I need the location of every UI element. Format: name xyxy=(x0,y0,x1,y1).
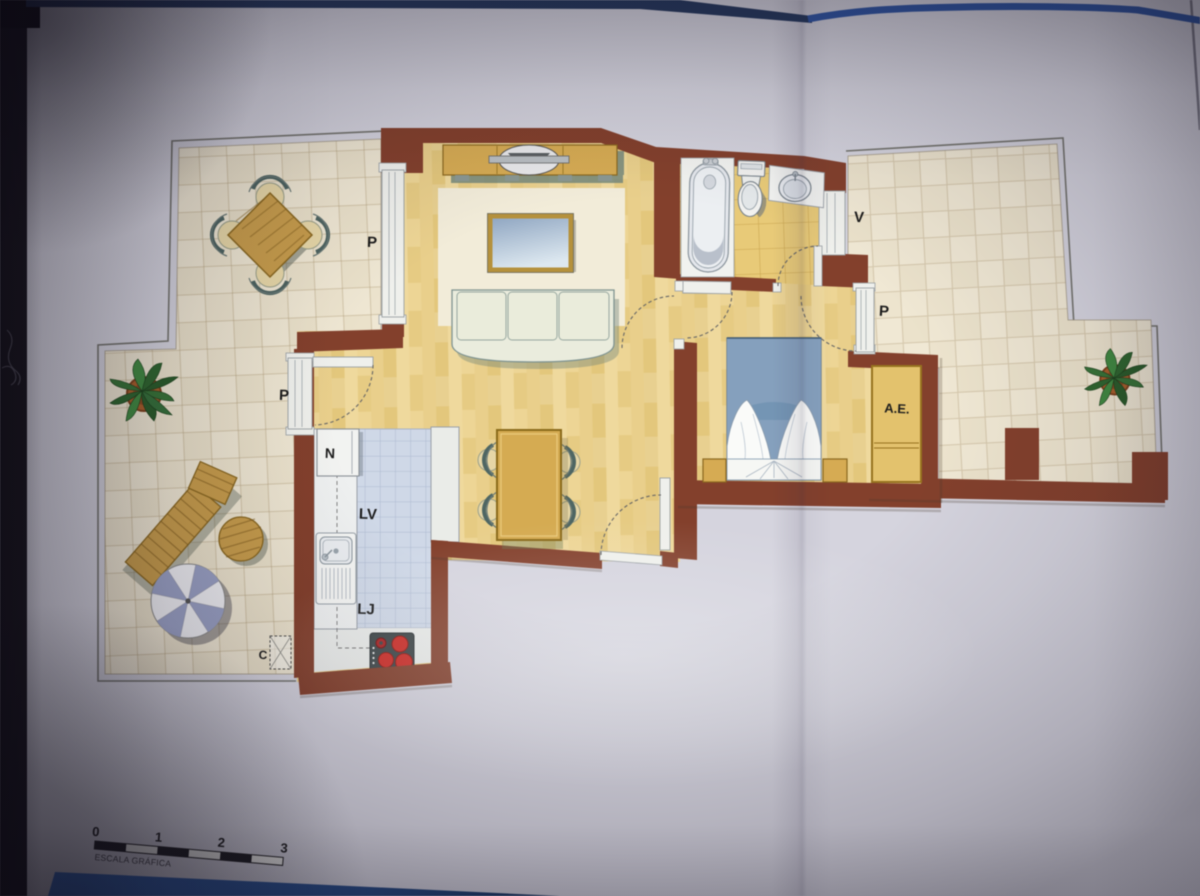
svg-text:C: C xyxy=(258,648,267,662)
svg-text:P: P xyxy=(367,234,378,251)
svg-text:A.E.: A.E. xyxy=(884,400,910,416)
svg-text:0: 0 xyxy=(92,824,101,840)
svg-text:1: 1 xyxy=(154,829,163,845)
svg-text:2: 2 xyxy=(217,835,226,851)
svg-text:3: 3 xyxy=(280,840,289,856)
svg-text:P: P xyxy=(879,303,890,321)
svg-text:N: N xyxy=(325,445,336,461)
svg-text:P: P xyxy=(279,387,290,404)
svg-text:LJ: LJ xyxy=(357,601,375,619)
svg-text:LV: LV xyxy=(359,506,378,524)
svg-text:V: V xyxy=(854,209,865,227)
